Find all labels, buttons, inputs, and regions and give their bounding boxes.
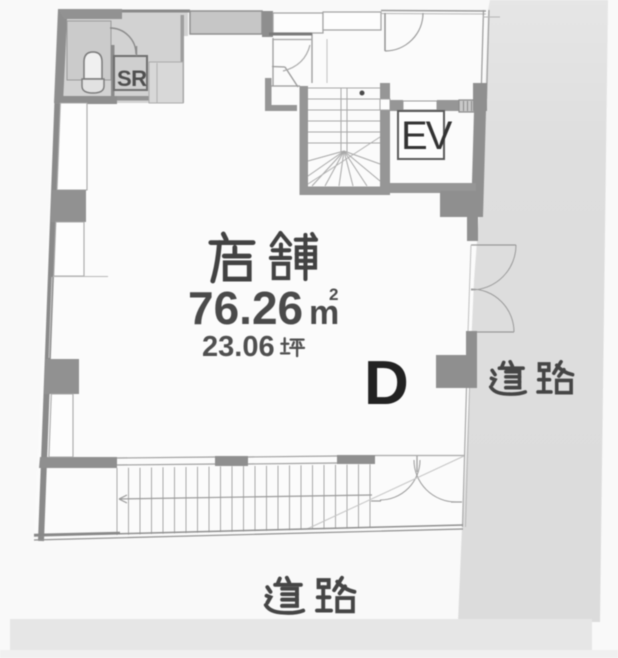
svg-text:D: D	[364, 349, 409, 418]
svg-text:23.06: 23.06	[202, 331, 275, 363]
svg-text:76.26: 76.26	[188, 282, 303, 334]
svg-text:2: 2	[329, 285, 338, 304]
svg-text:EV: EV	[401, 114, 453, 158]
svg-text:SR: SR	[117, 66, 147, 91]
